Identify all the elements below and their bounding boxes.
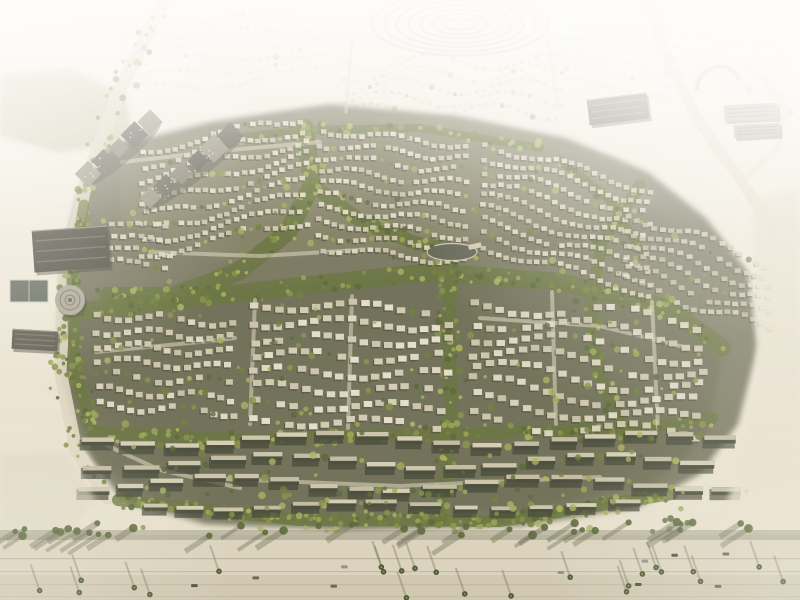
aerial-photo-svg [0, 0, 800, 600]
aerial-community-render [0, 0, 800, 600]
atmospheric-haze [0, 0, 800, 600]
screenshot-root [0, 0, 800, 600]
